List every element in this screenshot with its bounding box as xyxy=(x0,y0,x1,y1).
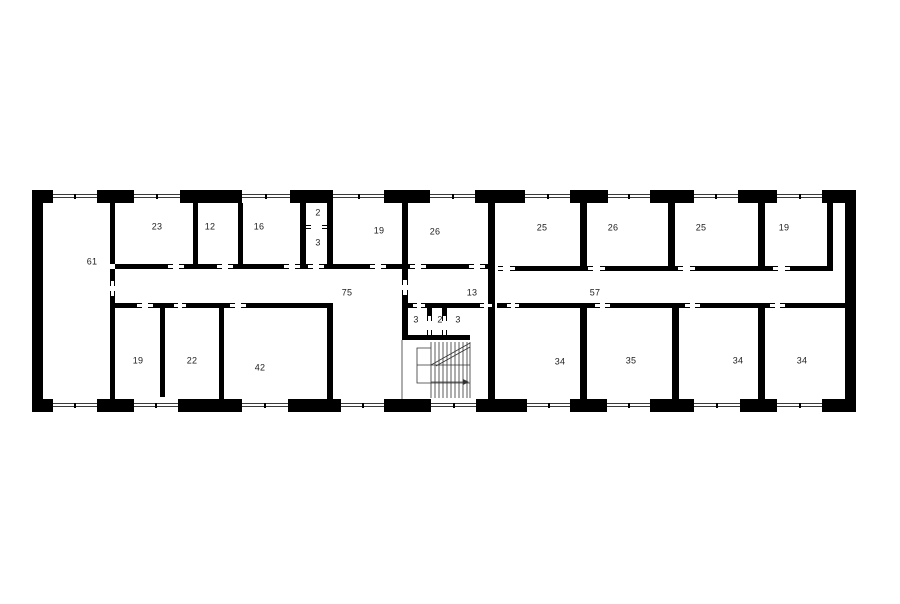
door-jamb-dash xyxy=(284,264,289,269)
room-label: 19 xyxy=(779,224,790,233)
window-center-tick xyxy=(628,194,630,199)
door-opening xyxy=(498,266,515,271)
door-jamb-dash xyxy=(515,303,519,308)
wall-segment xyxy=(476,399,527,412)
door-jamb-dash xyxy=(685,303,690,308)
door-opening xyxy=(427,316,432,335)
wall-segment xyxy=(758,308,765,399)
wall-segment xyxy=(115,303,137,308)
door-opening xyxy=(480,303,492,308)
door-opening xyxy=(217,264,233,269)
door-jamb-dash xyxy=(110,291,115,296)
door-opening xyxy=(770,303,785,308)
window-center-tick xyxy=(628,403,630,408)
window-center-tick xyxy=(156,194,158,199)
window-symbol xyxy=(430,194,475,198)
door-jamb-dash xyxy=(137,303,142,308)
door-jamb-dash xyxy=(370,264,375,269)
door-jamb-dash xyxy=(780,303,785,308)
door-jamb-dash xyxy=(308,264,313,269)
door-opening xyxy=(168,264,184,269)
door-jamb-dash xyxy=(295,264,300,269)
wall-segment xyxy=(672,308,679,399)
wall-segment xyxy=(115,264,168,269)
window-center-tick xyxy=(799,194,801,199)
door-opening xyxy=(284,264,300,269)
wall-segment xyxy=(97,399,134,412)
door-jamb-dash xyxy=(427,316,432,321)
door-jamb-dash xyxy=(182,303,186,308)
window-symbol xyxy=(134,403,178,407)
room-label: 3 xyxy=(413,316,418,325)
door-jamb-dash xyxy=(773,266,778,271)
wall-segment xyxy=(153,303,174,308)
door-jamb-dash xyxy=(421,264,426,269)
window-symbol xyxy=(242,194,290,198)
window-center-tick xyxy=(362,403,364,408)
wall-segment xyxy=(442,308,447,316)
window-symbol xyxy=(607,403,650,407)
wall-segment xyxy=(32,399,53,412)
wall-segment xyxy=(402,269,408,280)
window-center-tick xyxy=(715,194,717,199)
wall-segment xyxy=(402,295,408,340)
door-opening xyxy=(174,303,186,308)
wall-segment xyxy=(327,308,333,399)
wall-segment xyxy=(695,266,773,271)
door-jamb-dash xyxy=(488,303,492,308)
room-label: 57 xyxy=(590,289,601,298)
door-opening xyxy=(773,266,790,271)
door-opening xyxy=(469,264,485,269)
door-jamb-dash xyxy=(595,303,600,308)
wall-segment xyxy=(426,264,469,269)
wall-segment xyxy=(32,190,43,412)
door-jamb-dash xyxy=(469,264,474,269)
door-opening xyxy=(678,266,695,271)
window-symbol xyxy=(333,194,384,198)
room-label: 19 xyxy=(133,357,144,366)
wall-segment xyxy=(324,264,370,269)
door-jamb-dash xyxy=(168,264,173,269)
window-center-tick xyxy=(74,403,76,408)
wall-segment xyxy=(386,264,410,269)
room-label: 25 xyxy=(537,224,548,233)
wall-segment xyxy=(300,203,306,264)
room-label: 19 xyxy=(374,227,385,236)
wall-segment xyxy=(485,264,495,269)
window-symbol xyxy=(694,194,738,198)
door-opening xyxy=(442,316,447,335)
window-symbol xyxy=(242,403,288,407)
wall-segment xyxy=(740,399,777,412)
door-jamb-dash xyxy=(322,225,327,229)
wall-segment xyxy=(570,190,608,203)
door-jamb-dash xyxy=(174,303,178,308)
door-opening xyxy=(137,303,153,308)
wall-segment xyxy=(246,303,333,308)
room-label: 34 xyxy=(555,358,566,367)
door-jamb-dash xyxy=(110,281,115,286)
wall-segment xyxy=(822,190,856,203)
wall-segment xyxy=(497,303,507,308)
wall-segment xyxy=(402,203,408,264)
door-opening xyxy=(308,264,324,269)
window-center-tick xyxy=(358,194,360,199)
wall-segment xyxy=(97,190,134,203)
wall-segment xyxy=(827,203,833,271)
wall-segment xyxy=(180,190,242,203)
door-opening xyxy=(507,303,519,308)
wall-segment xyxy=(425,303,480,308)
window-symbol xyxy=(608,194,650,198)
wall-segment xyxy=(193,203,198,264)
room-label: 3 xyxy=(455,316,460,325)
door-jamb-dash xyxy=(402,280,408,285)
door-jamb-dash xyxy=(442,330,447,335)
room-label: 42 xyxy=(255,364,266,373)
door-opening xyxy=(110,281,115,296)
wall-segment xyxy=(160,308,165,397)
window-symbol xyxy=(431,403,476,407)
window-symbol xyxy=(134,194,180,198)
door-jamb-dash xyxy=(230,303,235,308)
wall-segment xyxy=(184,264,217,269)
wall-segment xyxy=(610,303,685,308)
door-jamb-dash xyxy=(678,266,683,271)
room-label: 35 xyxy=(626,357,637,366)
door-jamb-dash xyxy=(695,303,700,308)
wall-segment xyxy=(110,296,115,399)
window-symbol xyxy=(777,403,822,407)
wall-segment xyxy=(427,308,432,316)
room-label: 25 xyxy=(696,224,707,233)
door-jamb-dash xyxy=(507,303,511,308)
room-label: 13 xyxy=(467,289,478,298)
wall-segment xyxy=(785,303,856,308)
wall-segment xyxy=(402,335,470,340)
room-label: 3 xyxy=(315,239,320,248)
room-label: 75 xyxy=(342,289,353,298)
wall-segment xyxy=(384,190,430,203)
wall-segment xyxy=(845,190,856,412)
window-center-tick xyxy=(799,403,801,408)
wall-segment xyxy=(515,266,588,271)
window-center-tick xyxy=(547,194,549,199)
wall-segment xyxy=(238,203,243,264)
window-center-tick xyxy=(716,403,718,408)
window-symbol xyxy=(694,403,740,407)
window-center-tick xyxy=(74,194,76,199)
wall-segment xyxy=(290,190,333,203)
door-jamb-dash xyxy=(402,290,408,295)
door-jamb-dash xyxy=(770,303,775,308)
wall-segment xyxy=(700,303,770,308)
window-center-tick xyxy=(453,403,455,408)
wall-segment xyxy=(488,203,495,399)
wall-segment xyxy=(605,266,678,271)
door-jamb-dash xyxy=(421,303,425,308)
door-jamb-dash xyxy=(381,264,386,269)
room-label: 34 xyxy=(797,357,808,366)
room-label: 2 xyxy=(437,316,442,325)
door-opening xyxy=(685,303,700,308)
wall-segment xyxy=(758,203,765,266)
door-jamb-dash xyxy=(410,264,415,269)
door-opening xyxy=(230,303,246,308)
room-label: 34 xyxy=(733,357,744,366)
window-center-tick xyxy=(452,194,454,199)
window-center-tick xyxy=(264,403,266,408)
floor-plan: 6123121623192625262519751357323192242343… xyxy=(0,0,900,604)
room-label: 12 xyxy=(205,223,216,232)
wall-segment xyxy=(300,264,308,269)
door-jamb-dash xyxy=(600,266,605,271)
wall-segment xyxy=(519,303,595,308)
window-symbol xyxy=(527,403,570,407)
door-jamb-dash xyxy=(241,303,246,308)
window-center-tick xyxy=(548,403,550,408)
window-symbol xyxy=(341,403,384,407)
room-label: 23 xyxy=(152,223,163,232)
wall-segment xyxy=(288,399,341,412)
door-jamb-dash xyxy=(785,266,790,271)
door-jamb-dash xyxy=(148,303,153,308)
door-jamb-dash xyxy=(480,264,485,269)
wall-segment xyxy=(110,269,115,281)
wall-segment xyxy=(738,190,777,203)
wall-segment xyxy=(580,308,587,399)
door-jamb-dash xyxy=(427,330,432,335)
wall-segment xyxy=(650,399,694,412)
wall-segment xyxy=(327,203,333,264)
window-center-tick xyxy=(265,194,267,199)
door-opening xyxy=(370,264,386,269)
door-jamb-dash xyxy=(588,266,593,271)
door-jamb-dash xyxy=(605,303,610,308)
room-label: 61 xyxy=(87,258,98,267)
wall-segment xyxy=(110,203,115,264)
door-jamb-dash xyxy=(179,264,184,269)
door-jamb-dash xyxy=(306,225,311,229)
wall-segment xyxy=(32,190,53,203)
door-opening xyxy=(413,303,425,308)
room-label: 2 xyxy=(315,209,320,218)
door-opening xyxy=(306,225,327,229)
door-jamb-dash xyxy=(413,303,417,308)
wall-segment xyxy=(822,399,856,412)
wall-segment xyxy=(650,190,694,203)
door-jamb-dash xyxy=(480,303,484,308)
wall-segment xyxy=(178,399,242,412)
wall-segment xyxy=(384,399,431,412)
window-symbol xyxy=(525,194,570,198)
door-jamb-dash xyxy=(510,266,515,271)
wall-segment xyxy=(790,266,833,271)
door-jamb-dash xyxy=(442,316,447,321)
wall-segment xyxy=(233,264,284,269)
wall-segment xyxy=(403,303,413,308)
window-symbol xyxy=(53,194,97,198)
room-label: 26 xyxy=(608,224,619,233)
wall-segment xyxy=(219,308,224,399)
staircase-icon xyxy=(400,338,492,400)
door-jamb-dash xyxy=(228,264,233,269)
wall-segment xyxy=(570,399,607,412)
window-symbol xyxy=(53,403,97,407)
window-symbol xyxy=(777,194,822,198)
wall-segment xyxy=(668,203,675,266)
wall-segment xyxy=(186,303,230,308)
room-label: 16 xyxy=(254,223,265,232)
door-opening xyxy=(402,280,408,295)
door-jamb-dash xyxy=(690,266,695,271)
door-jamb-dash xyxy=(498,266,503,271)
room-label: 22 xyxy=(187,357,198,366)
door-opening xyxy=(410,264,426,269)
door-opening xyxy=(595,303,610,308)
room-label: 26 xyxy=(430,228,441,237)
wall-segment xyxy=(475,190,525,203)
door-jamb-dash xyxy=(319,264,324,269)
window-center-tick xyxy=(155,403,157,408)
door-jamb-dash xyxy=(217,264,222,269)
door-opening xyxy=(588,266,605,271)
wall-segment xyxy=(580,203,587,266)
